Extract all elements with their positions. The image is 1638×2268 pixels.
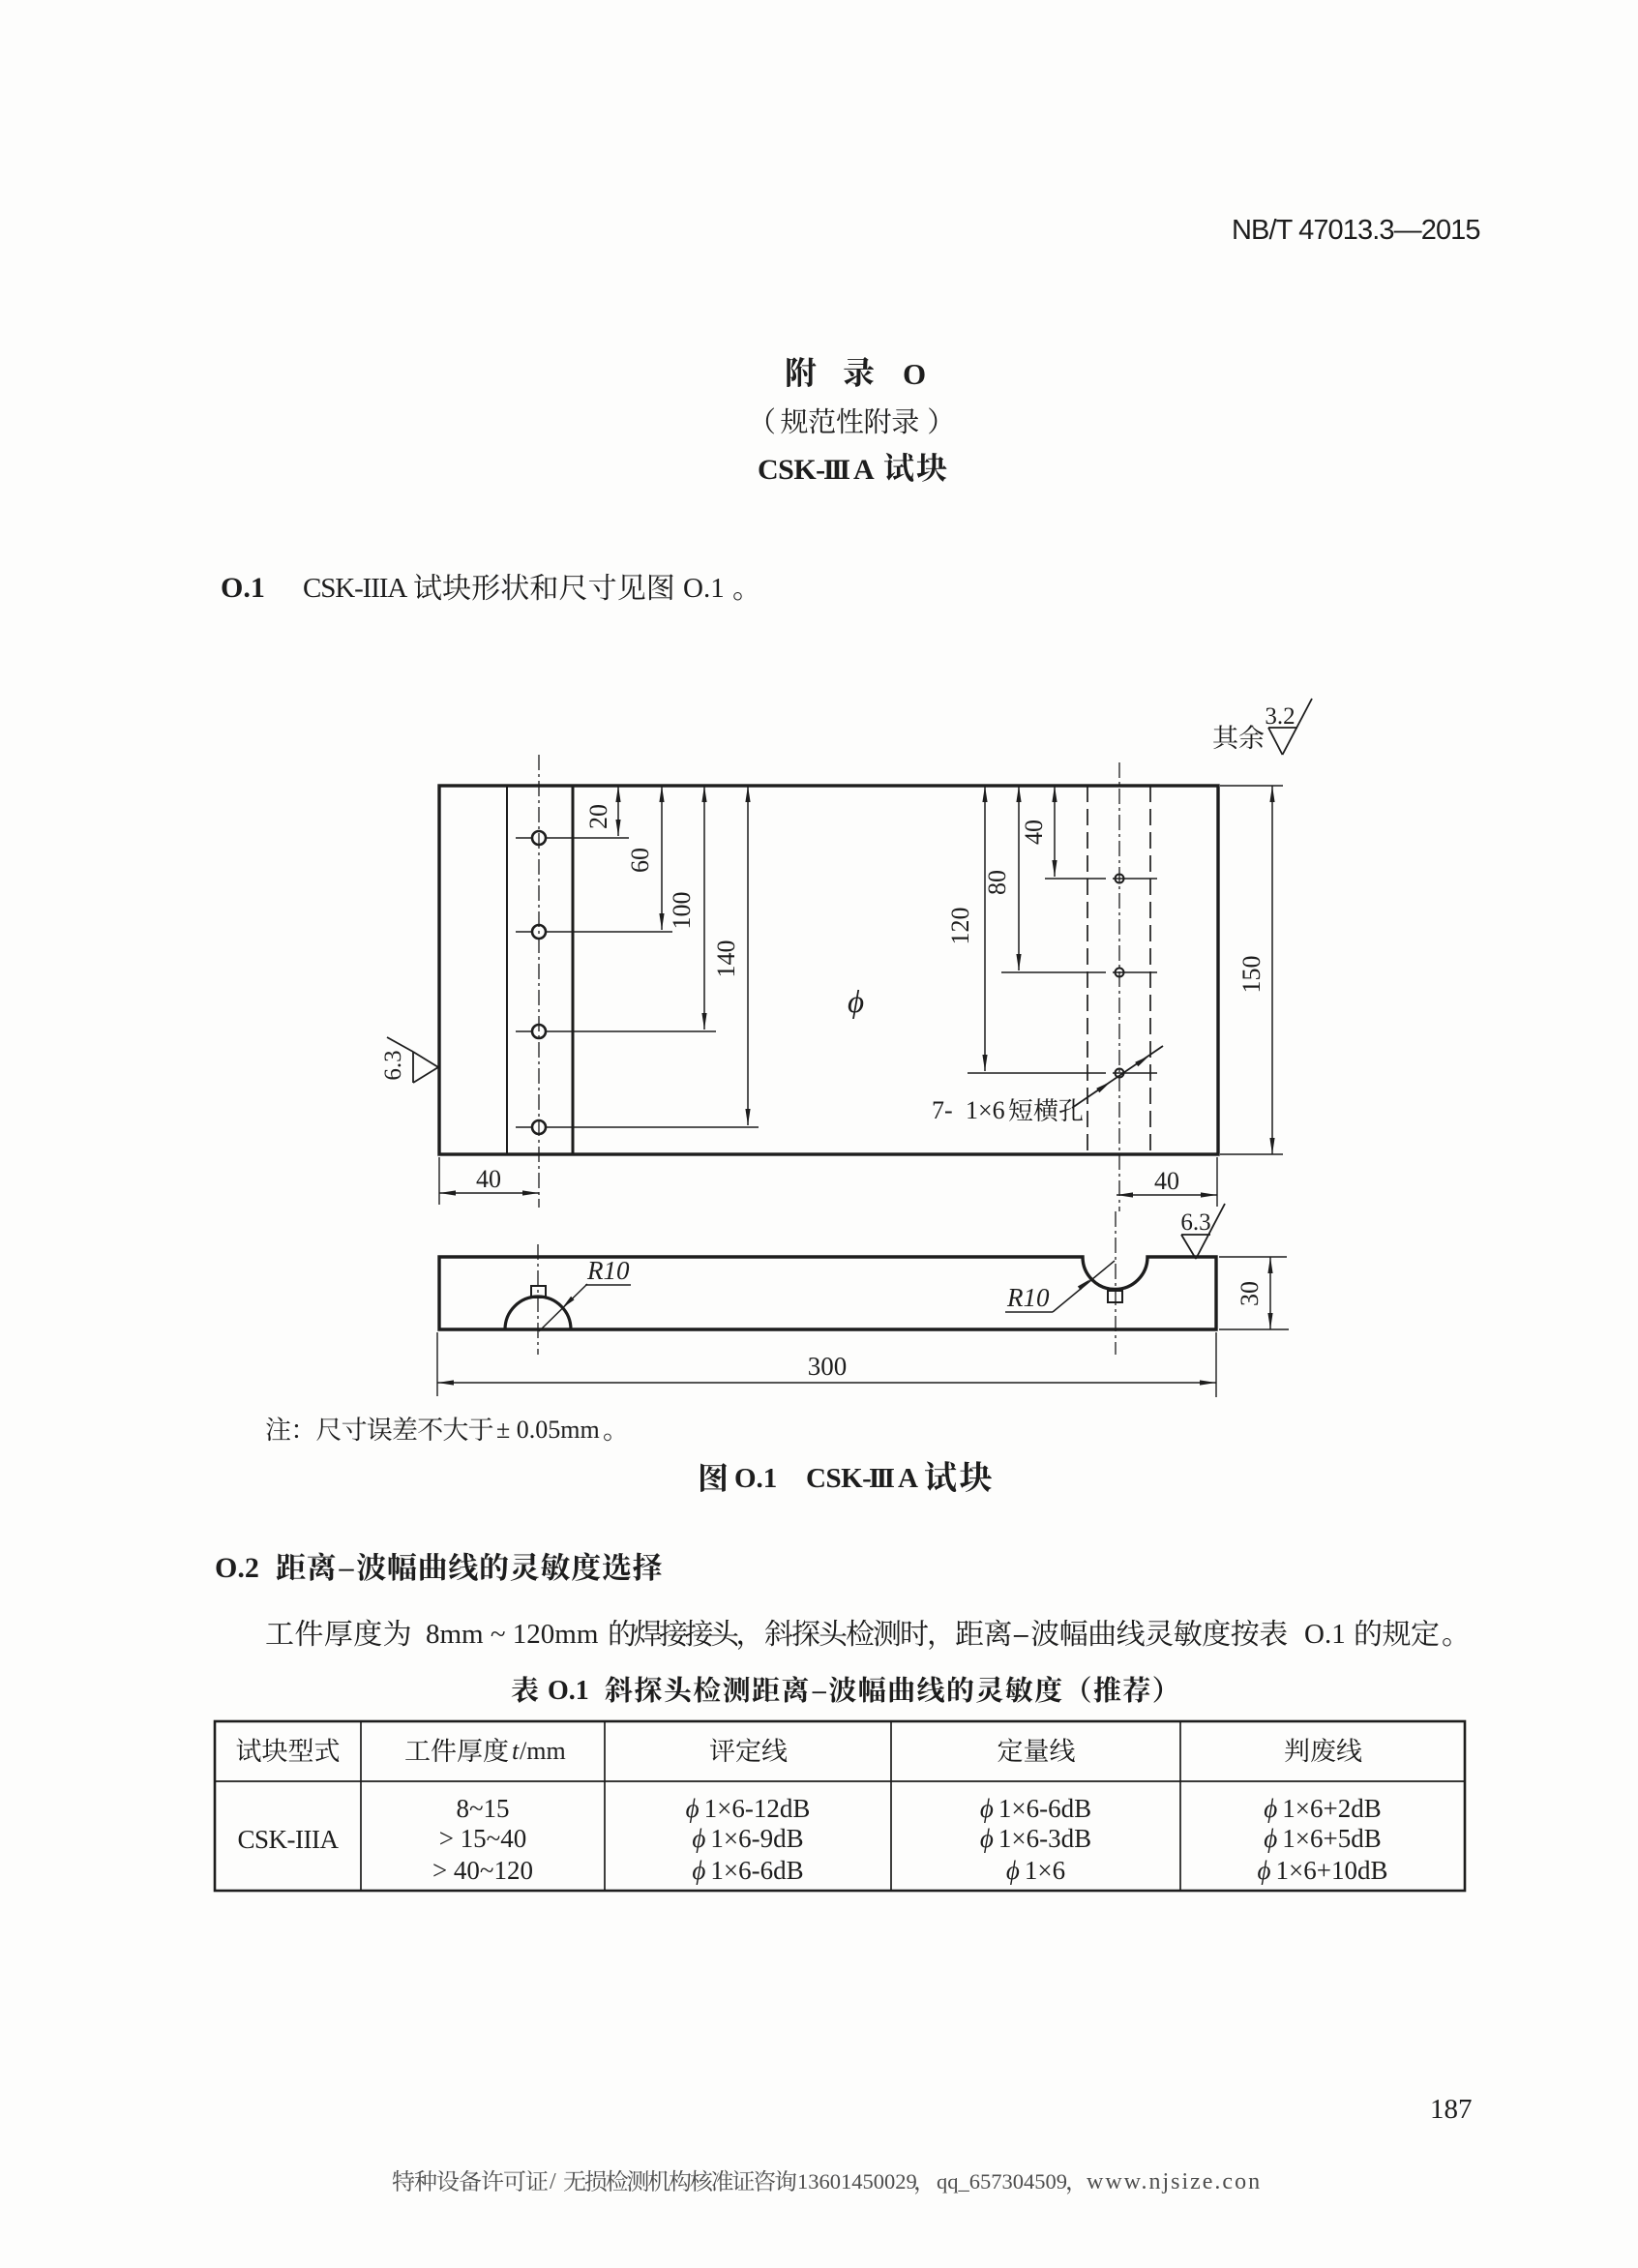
svg-text:1×6: 1×6 [966, 1096, 1005, 1124]
svg-text:ϕ1×6-3dB: ϕ1×6-3dB [980, 1824, 1091, 1853]
svg-text:40: 40 [1020, 820, 1048, 845]
svg-text:/: / [550, 2169, 556, 2194]
svg-text:8~15: 8~15 [456, 1794, 509, 1823]
svg-text:A: A [898, 1463, 918, 1494]
svg-text:40: 40 [476, 1165, 501, 1193]
svg-text:R10: R10 [1006, 1283, 1050, 1312]
svg-text:20: 20 [584, 804, 612, 829]
svg-text:III: III [823, 454, 849, 486]
svg-text:ϕ1×6: ϕ1×6 [1006, 1856, 1065, 1885]
svg-text:O.2: O.2 [215, 1552, 259, 1584]
svg-text:/mm: /mm [520, 1737, 566, 1765]
svg-text:CSK-: CSK- [758, 454, 825, 486]
svg-text:ϕ1×6+2dB: ϕ1×6+2dB [1264, 1794, 1381, 1823]
svg-text:> 40~120: > 40~120 [432, 1856, 533, 1885]
svg-text:120: 120 [946, 908, 974, 945]
svg-text:30: 30 [1236, 1281, 1264, 1306]
svg-text:www.njsize.con: www.njsize.con [1087, 2169, 1262, 2194]
svg-text:± 0.05mm: ± 0.05mm [496, 1416, 600, 1444]
svg-text:t: t [512, 1737, 520, 1765]
svg-text:187: 187 [1430, 2094, 1473, 2125]
svg-text:> 15~40: > 15~40 [439, 1824, 527, 1853]
svg-text:ϕ1×6-6dB: ϕ1×6-6dB [980, 1794, 1091, 1823]
svg-text:7-: 7- [932, 1096, 953, 1124]
svg-text:6.3: 6.3 [380, 1050, 406, 1080]
svg-text:80: 80 [983, 870, 1011, 895]
svg-text:ϕ1×6-12dB: ϕ1×6-12dB [686, 1794, 811, 1823]
svg-text:300: 300 [808, 1352, 848, 1381]
svg-text:60: 60 [626, 848, 654, 873]
svg-text:6.3: 6.3 [1180, 1209, 1210, 1236]
svg-text:3.2: 3.2 [1265, 703, 1295, 730]
svg-text:CSK-: CSK- [806, 1463, 871, 1494]
svg-text:O.1: O.1 [734, 1463, 777, 1494]
svg-text:NB/T 47013.3—2015: NB/T 47013.3—2015 [1232, 215, 1480, 246]
svg-text:O.1: O.1 [1304, 1619, 1346, 1650]
svg-text:8mm ~ 120mm: 8mm ~ 120mm [426, 1619, 599, 1650]
svg-text:O.1: O.1 [683, 573, 725, 604]
svg-text:qq_657304509: qq_657304509 [937, 2169, 1067, 2193]
svg-text:ϕ: ϕ [848, 985, 864, 1020]
svg-text:ϕ1×6+10dB: ϕ1×6+10dB [1258, 1856, 1388, 1885]
svg-text:140: 140 [712, 940, 740, 978]
svg-text:O.1: O.1 [548, 1676, 589, 1706]
svg-text:ϕ1×6-6dB: ϕ1×6-6dB [692, 1856, 803, 1885]
svg-text:O.1: O.1 [221, 572, 265, 604]
svg-text:CSK-IIIA: CSK-IIIA [303, 573, 407, 604]
svg-text:40: 40 [1154, 1167, 1179, 1195]
svg-text:ϕ1×6+5dB: ϕ1×6+5dB [1264, 1824, 1381, 1853]
svg-text:ϕ1×6-9dB: ϕ1×6-9dB [692, 1824, 803, 1853]
svg-text:13601450029: 13601450029 [797, 2169, 917, 2193]
svg-text:100: 100 [668, 892, 696, 930]
svg-text:O: O [903, 357, 926, 391]
svg-text:A: A [853, 454, 875, 486]
svg-text:R10: R10 [586, 1256, 630, 1285]
svg-text:III: III [869, 1463, 895, 1494]
svg-text:CSK-IIIA: CSK-IIIA [238, 1825, 340, 1854]
svg-text:150: 150 [1237, 956, 1266, 994]
